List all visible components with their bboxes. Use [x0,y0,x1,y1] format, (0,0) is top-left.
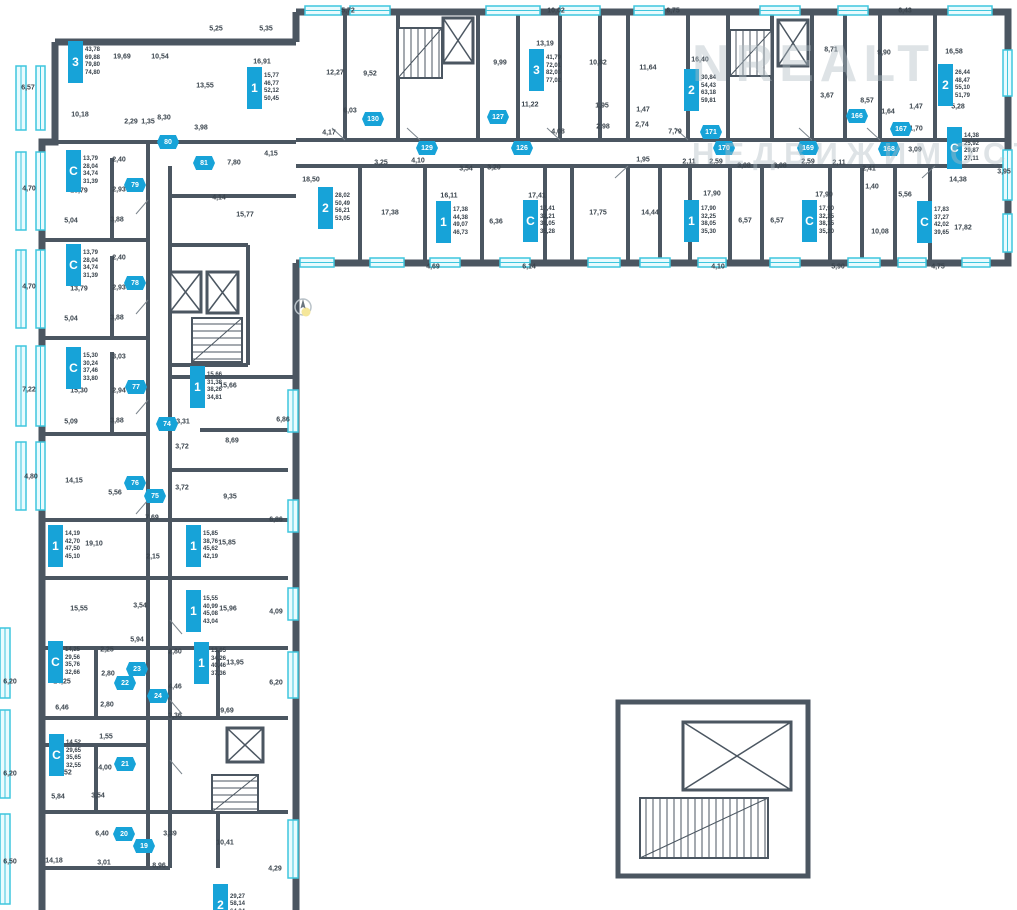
unit-number-badge[interactable]: 74 [156,417,178,431]
apartment-type-label: 3 [68,41,83,83]
room-area-label: 5,56 [108,490,122,497]
apartment-areas: 29,2758,1464,34 [230,894,245,910]
apartment-areas: 13,7928,0434,7431,39 [83,250,98,280]
room-area-label: 17,90 [815,192,833,199]
watermark-logo: NREALT [692,34,935,94]
room-area-label: 4,80 [24,474,38,481]
apartment-areas: 17,8337,2742,0239,65 [934,207,949,237]
room-area-label: 6,03 [343,108,357,115]
apartment-type-label: 1 [436,201,451,243]
room-area-label: 10,54 [151,54,169,61]
room-area-label: 15,77 [236,212,254,219]
apartment-areas: 14,1942,7047,5045,10 [65,531,80,561]
apartment-areas: 13,9534,2640,4637,36 [211,648,226,678]
unit-number-badge[interactable]: 76 [124,476,146,490]
apartment-badge[interactable]: C14,2529,5635,7632,66 [48,641,80,683]
room-area-label: 10,82 [589,60,607,67]
room-area-label: 3,39 [163,831,177,838]
room-area-label: 5,04 [64,218,78,225]
room-area-label: 14,15 [65,478,83,485]
room-area-label: 6,75 [666,8,680,15]
room-area-label: 13,79 [70,286,88,293]
room-area-label: 1,35 [141,119,155,126]
apartment-badge[interactable]: C15,3030,2437,4633,80 [66,347,98,389]
unit-number-badge[interactable]: 23 [126,662,148,676]
room-area-label: 8,57 [860,98,874,105]
room-area-label: 3,88 [110,418,124,425]
apartment-type-label: C [66,244,81,286]
room-area-label: 5,90 [831,264,845,271]
room-area-label: 15,96 [219,606,237,613]
apartment-areas: 13,7928,0434,7431,39 [83,156,98,186]
room-area-label: 2,80 [100,702,114,709]
unit-number-badge[interactable]: 20 [113,827,135,841]
apartment-areas: 17,3844,3849,0746,73 [453,207,468,237]
apartment-type-label: 1 [194,642,209,684]
unit-number-badge[interactable]: 21 [114,757,136,771]
apartment-badge[interactable]: 117,9032,2538,0535,30 [684,200,716,242]
unit-number-badge[interactable]: 130 [362,112,384,126]
room-area-label: 3,31 [176,419,190,426]
room-area-label: 6,36 [489,219,503,226]
room-area-label: 4,10 [411,158,425,165]
apartment-type-label: 1 [186,525,201,567]
apartment-type-label: 1 [48,525,63,567]
unit-number-badge[interactable]: 126 [511,141,533,155]
room-area-label: 9,35 [223,494,237,501]
room-area-label: 6,50 [3,859,17,866]
room-area-label: 5,94 [130,637,144,644]
room-area-label: 2,80 [101,671,115,678]
room-area-label: 4,75 [931,264,945,271]
room-area-label: 1,47 [636,107,650,114]
room-area-label: 2,15 [146,554,160,561]
apartment-badge[interactable]: C13,7928,0434,7431,39 [66,150,98,192]
room-area-label: 1,95 [636,157,650,164]
room-area-label: 6,20 [3,679,17,686]
unit-number-badge[interactable]: 129 [416,141,438,155]
room-area-label: 4,00 [98,765,112,772]
room-area-label: 6,86 [276,417,290,424]
room-area-label: 17,90 [703,191,721,198]
room-area-label: 4,08 [551,129,565,136]
room-area-label: 3,54 [91,793,105,800]
room-area-label: 2,94 [112,388,126,395]
room-area-label: 16,58 [945,49,963,56]
room-area-label: 3,72 [175,444,189,451]
unit-number-badge[interactable]: 22 [114,676,136,690]
apartment-areas: 17,4132,2138,0535,28 [540,206,555,236]
room-area-label: 4,46 [168,684,182,691]
floor-plan: NREALT НЕДВИЖИМОСТЬ 19,6910,5413,5510,18… [0,0,1017,910]
room-area-label: 4,09 [269,609,283,616]
unit-number-badge[interactable]: 81 [193,156,215,170]
unit-number-badge[interactable]: 24 [147,689,169,703]
apartment-badge[interactable]: 228,0250,4956,2153,05 [318,187,350,229]
apartment-areas: 15,3030,2437,4633,80 [83,353,98,383]
unit-number-badge[interactable]: 80 [157,135,179,149]
room-area-label: 17,41 [528,193,546,200]
room-area-label: 4,29 [268,866,282,873]
room-area-label: 6,57 [21,85,35,92]
room-area-label: 7,80 [227,160,241,167]
room-area-label: 4,70 [22,186,36,193]
room-area-label: 15,55 [70,606,88,613]
apartment-type-label: C [802,200,817,242]
room-area-label: 2,80 [168,649,182,656]
apartment-badge[interactable]: 113,9534,2640,4637,36 [194,642,226,684]
unit-number-badge[interactable]: 127 [487,110,509,124]
room-area-label: 5,72 [341,8,355,15]
room-area-label: 16,91 [253,59,271,66]
room-area-label: 4,10 [711,264,725,271]
unit-number-badge[interactable]: 78 [124,276,146,290]
room-area-label: 6,20 [269,680,283,687]
apartment-areas: 28,0250,4956,2153,05 [335,193,350,223]
apartment-badge[interactable]: 114,1942,7047,5045,10 [48,525,80,567]
room-area-label: 2,93 [112,285,126,292]
apartment-badge[interactable]: C13,7928,0434,7431,39 [66,244,98,286]
room-area-label: 8,69 [225,438,239,445]
apartment-badge[interactable]: C17,4132,2138,0535,28 [523,200,555,242]
apartment-type-label: 3 [529,49,544,91]
room-area-label: 3,88 [110,315,124,322]
room-area-label: 13,55 [196,83,214,90]
room-area-label: 9,52 [363,71,377,78]
unit-number-badge[interactable]: 167 [890,122,912,136]
room-area-label: 3,03 [112,354,126,361]
room-area-label: 3,25 [374,160,388,167]
room-area-label: 4,15 [264,151,278,158]
apartment-badge[interactable]: 341,7972,0182,0377,02 [529,49,561,91]
room-area-label: 5,25 [209,26,223,33]
room-area-label: 7,79 [668,129,682,136]
room-area-label: 6,46 [55,705,69,712]
apartment-type-label: 2 [213,884,228,910]
room-area-label: 4,69 [426,264,440,271]
room-area-label: 1,95 [595,103,609,110]
apartment-type-label: C [66,150,81,192]
room-area-label: 6,43 [898,8,912,15]
apartment-areas: 41,7972,0182,0377,02 [546,55,561,85]
apartment-areas: 15,7746,7752,1250,45 [264,73,279,103]
apartment-type-label: 2 [318,187,333,229]
apartment-areas: 15,5540,9945,0843,04 [203,596,218,626]
room-area-label: 5,84 [51,794,65,801]
apartment-type-label: 1 [247,67,262,109]
apartment-badge[interactable]: C17,9032,2538,1535,20 [802,200,834,242]
room-area-label: 7,69 [145,515,159,522]
room-area-label: 10,02 [547,8,565,15]
room-area-label: 15,85 [218,540,236,547]
apartment-type-label: 1 [186,590,201,632]
room-area-label: 2,98 [596,124,610,131]
room-area-label: 4,17 [322,130,336,137]
room-area-label: 5,09 [64,419,78,426]
room-area-label: 2,93 [112,187,126,194]
room-area-label: 2,74 [635,122,649,129]
room-area-label: 8,30 [157,115,171,122]
apartment-areas: 17,9032,2538,1535,20 [819,206,834,236]
room-area-label: 13,95 [226,660,244,667]
room-area-label: 8,96 [152,863,166,870]
apartment-areas: 43,7869,8879,8074,80 [85,47,100,77]
room-area-label: 3,88 [110,217,124,224]
apartment-type-label: C [66,347,81,389]
room-area-label: 5,56 [898,192,912,199]
room-area-label: 3,98 [194,125,208,132]
apartment-badge[interactable]: 226,4448,4755,1051,79 [938,64,970,106]
apartment-badge[interactable]: C14,5229,6535,6532,55 [49,734,81,776]
room-area-label: 5,35 [259,26,273,33]
apartment-type-label: C [917,201,932,243]
apartment-badge[interactable]: 115,5540,9945,0843,04 [186,590,218,632]
apartment-badge[interactable]: 229,2758,1464,34 [213,884,245,910]
apartment-type-label: 1 [190,366,205,408]
apartment-badge[interactable]: C17,8337,2742,0239,65 [917,201,949,243]
room-area-label: 11,64 [639,65,656,72]
room-area-label: 6,14 [522,264,536,271]
room-area-label: 3,54 [459,166,473,173]
room-area-label: 6,86 [269,517,283,524]
room-area-label: 14,44 [641,210,659,217]
room-area-label: 9,99 [493,60,507,67]
room-area-label: 6,20 [3,771,17,778]
room-area-label: 3,54 [133,603,147,610]
unit-number-badge[interactable]: 79 [124,178,146,192]
room-area-label: 2,40 [112,157,126,164]
apartment-type-label: C [523,200,538,242]
apartment-areas: 26,4448,4755,1051,79 [955,70,970,100]
room-area-label: 1,55 [99,734,113,741]
apartment-areas: 15,8538,7645,6242,19 [203,531,218,561]
room-area-label: 1,64 [881,109,895,116]
room-area-label: 10,41 [216,840,234,847]
apartment-badge[interactable]: 115,7746,7752,1250,45 [247,67,279,109]
room-area-label: 19,69 [113,54,131,61]
apartment-areas: 14,5229,6535,6532,55 [66,740,81,770]
room-area-label: 17,82 [954,225,972,232]
room-area-label: 2,29 [124,119,138,126]
apartment-badge[interactable]: 343,7869,8879,8074,80 [68,41,100,83]
apartment-type-label: C [48,641,63,683]
room-area-label: 17,75 [589,210,607,217]
room-area-label: 11,22 [521,102,538,109]
room-area-label: 3,36 [168,713,182,720]
room-area-label: 3,01 [97,860,111,867]
room-area-label: 5,04 [64,316,78,323]
room-area-label: 1,47 [909,104,923,111]
room-area-label: 16,11 [440,193,457,200]
room-area-label: 6,40 [95,831,109,838]
apartment-badge[interactable]: 117,3844,3849,0746,73 [436,201,468,243]
watermark-subtitle: НЕДВИЖИМОСТЬ [692,136,1017,172]
room-area-label: 12,27 [326,70,344,77]
room-area-label: 18,50 [302,177,320,184]
room-area-label: 14,18 [45,858,63,865]
room-area-label: 3,20 [487,165,501,172]
room-area-label: 9,69 [220,708,234,715]
room-area-label: 19,10 [85,541,103,548]
room-area-label: 4,70 [22,284,36,291]
room-area-label: 3,72 [175,485,189,492]
room-area-label: 17,38 [381,210,399,217]
apartment-type-label: 1 [684,200,699,242]
room-area-label: 6,57 [738,218,752,225]
apartment-badge[interactable]: 115,6631,3838,2634,81 [190,366,222,408]
unit-number-badge[interactable]: 75 [144,489,166,503]
room-area-label: 14,38 [949,177,967,184]
unit-number-badge[interactable]: 77 [125,380,147,394]
unit-number-badge[interactable]: 19 [133,839,155,853]
room-area-label: 2,25 [100,647,114,654]
room-area-label: 2,40 [112,255,126,262]
apartment-areas: 17,9032,2538,0535,30 [701,206,716,236]
unit-number-badge[interactable]: 166 [846,109,868,123]
room-area-label: 1,40 [865,184,879,191]
apartment-badge[interactable]: 115,8538,7645,6242,19 [186,525,218,567]
apartment-areas: 15,6631,3838,2634,81 [207,372,222,402]
room-area-label: 6,57 [770,218,784,225]
room-area-label: 10,08 [871,229,889,236]
apartment-areas: 14,2529,5635,7632,66 [65,647,80,677]
room-area-label: 13,19 [536,41,554,48]
apartment-type-label: C [49,734,64,776]
room-area-label: 10,18 [71,112,89,119]
room-area-label: 4,14 [212,195,226,202]
apartment-type-label: 2 [938,64,953,106]
room-area-label: 7,22 [22,387,36,394]
